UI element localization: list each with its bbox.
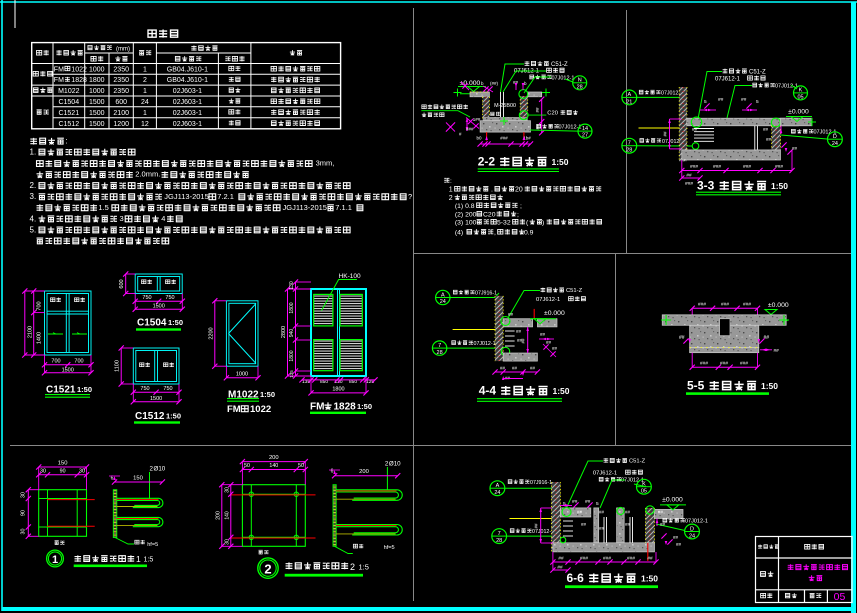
- svg-text:750: 750: [165, 295, 174, 301]
- svg-text:2: 2: [143, 77, 147, 84]
- svg-text:1:50: 1:50: [260, 390, 275, 399]
- svg-text:150: 150: [133, 475, 143, 481]
- svg-text:.: .: [491, 187, 493, 194]
- svg-text:750: 750: [163, 386, 172, 392]
- svg-text:##: ##: [546, 340, 552, 345]
- svg-text:###: ###: [685, 181, 693, 187]
- svg-text:##: ##: [647, 556, 653, 562]
- svg-text:2.0mm.: 2.0mm.: [135, 170, 160, 179]
- svg-text:###: ###: [740, 361, 748, 367]
- svg-text:1800: 1800: [332, 387, 344, 393]
- svg-text:24: 24: [689, 533, 695, 539]
- svg-text:1: 1: [52, 554, 58, 566]
- svg-text:HK-100: HK-100: [339, 273, 361, 280]
- svg-text:07J612-1: 07J612-1: [715, 77, 741, 83]
- svg-text:600: 600: [115, 99, 127, 106]
- svg-text:##: ##: [625, 510, 631, 515]
- svg-text:C1504: C1504: [137, 318, 167, 329]
- svg-text:30: 30: [224, 539, 230, 545]
- svg-text:hf=5: hf=5: [147, 542, 158, 548]
- svg-text:24: 24: [494, 490, 500, 496]
- svg-text:2350: 2350: [113, 77, 129, 84]
- svg-text:20: 20: [515, 187, 523, 194]
- svg-text:02J603-1: 02J603-1: [173, 110, 202, 117]
- svg-text:07J916-1: 07J916-1: [475, 291, 497, 297]
- svg-text:###: ###: [721, 302, 729, 308]
- svg-text:###: ###: [743, 164, 751, 170]
- svg-text:4.: 4.: [30, 214, 37, 223]
- svg-text:###: ###: [698, 302, 706, 308]
- svg-text:##: ##: [660, 522, 666, 527]
- svg-text:1:50: 1:50: [168, 318, 183, 327]
- svg-text:##: ##: [581, 522, 587, 527]
- svg-text:1000: 1000: [236, 371, 248, 377]
- svg-text:4-4: 4-4: [479, 384, 497, 398]
- svg-text:(3) 100: (3) 100: [455, 219, 477, 226]
- svg-text:;: ;: [520, 203, 522, 210]
- svg-text:K: K: [642, 482, 646, 488]
- svg-text:###: ###: [713, 164, 721, 170]
- svg-text:21: 21: [626, 99, 632, 105]
- svg-text:700: 700: [74, 359, 83, 365]
- svg-text:1000: 1000: [89, 66, 105, 73]
- svg-text:C1521: C1521: [46, 385, 76, 396]
- svg-text:02J603-1: 02J603-1: [173, 121, 202, 128]
- svg-text:1200: 1200: [113, 121, 129, 128]
- svg-text:##: ##: [741, 97, 747, 103]
- svg-text:2800: 2800: [281, 326, 287, 338]
- svg-text:50: 50: [244, 463, 250, 469]
- svg-text:7: 7: [498, 531, 501, 537]
- svg-text:##: ##: [663, 131, 668, 137]
- svg-text:30: 30: [40, 468, 46, 474]
- svg-text:C20: C20: [483, 211, 496, 218]
- svg-text::: :: [65, 137, 67, 146]
- svg-text:0.9: 0.9: [524, 229, 534, 236]
- svg-text:30: 30: [79, 468, 85, 474]
- svg-text:1: 1: [143, 88, 147, 95]
- svg-text:1100: 1100: [115, 360, 121, 372]
- svg-text:,: ,: [494, 229, 496, 236]
- svg-text:##: ##: [625, 522, 631, 527]
- svg-text:150: 150: [58, 460, 68, 466]
- svg-text:28: 28: [626, 148, 632, 154]
- svg-text:28: 28: [496, 538, 502, 544]
- svg-text:1500: 1500: [89, 121, 105, 128]
- svg-text:1400: 1400: [37, 332, 43, 344]
- svg-text:1:5: 1:5: [359, 563, 369, 572]
- svg-text:24: 24: [141, 99, 149, 106]
- svg-text:3mm,: 3mm,: [316, 159, 335, 168]
- svg-text:##: ##: [764, 335, 770, 341]
- svg-text:50: 50: [298, 463, 304, 469]
- svg-text:##: ##: [676, 542, 682, 547]
- svg-text:90: 90: [60, 468, 66, 474]
- svg-text:90: 90: [21, 510, 27, 516]
- svg-text:##: ##: [718, 97, 724, 103]
- svg-text:hf=5: hf=5: [384, 545, 395, 551]
- svg-text:05: 05: [641, 489, 647, 495]
- svg-text:1828: 1828: [334, 402, 357, 413]
- svg-text:6-6: 6-6: [567, 571, 585, 585]
- svg-text:5.: 5.: [30, 225, 37, 234]
- svg-text:): ): [542, 219, 544, 226]
- svg-text:FM: FM: [54, 77, 64, 84]
- svg-text:5: 5: [596, 501, 599, 507]
- svg-text:C1521: C1521: [58, 110, 79, 117]
- svg-text:(mm): (mm): [116, 46, 130, 52]
- svg-text:###: ###: [580, 556, 588, 562]
- svg-text:Ø10: Ø10: [389, 461, 401, 468]
- svg-text:N: N: [578, 78, 582, 84]
- svg-text:##: ##: [558, 556, 564, 562]
- svg-text:07J012-1: 07J012-1: [685, 519, 708, 525]
- svg-text:1500: 1500: [153, 304, 165, 310]
- svg-text:(2) 200: (2) 200: [455, 211, 477, 218]
- svg-text:5-32: 5-32: [497, 219, 511, 226]
- svg-text:###: ###: [743, 302, 751, 308]
- svg-text:1:50: 1:50: [357, 402, 372, 411]
- svg-text:±0.000: ±0.000: [544, 310, 565, 317]
- svg-text:###: ###: [627, 556, 635, 562]
- svg-text:D: D: [690, 526, 694, 532]
- svg-text:2: 2: [264, 562, 271, 577]
- svg-text:JGJ113-2015: JGJ113-2015: [164, 192, 208, 201]
- svg-text:1800: 1800: [289, 302, 295, 313]
- svg-text:2.: 2.: [30, 181, 37, 190]
- svg-text:##: ##: [692, 127, 698, 132]
- svg-text:##: ##: [540, 332, 546, 337]
- svg-text:7.1.1: 7.1.1: [335, 203, 352, 212]
- svg-text:7: 7: [628, 141, 631, 147]
- svg-text:Ø10: Ø10: [154, 466, 166, 473]
- svg-text:±0.000: ±0.000: [662, 497, 683, 504]
- svg-text:##: ##: [508, 312, 514, 317]
- svg-text:1500: 1500: [89, 99, 105, 106]
- svg-text:A: A: [496, 483, 500, 489]
- svg-text:07J612-1: 07J612-1: [514, 69, 540, 75]
- svg-text:1.5: 1.5: [98, 203, 108, 212]
- svg-text:07J012-1: 07J012-1: [532, 529, 554, 535]
- svg-text:###: ###: [775, 164, 783, 170]
- svg-text:##: ##: [763, 127, 769, 132]
- svg-text:M1022: M1022: [58, 88, 80, 95]
- svg-text:1000: 1000: [89, 88, 105, 95]
- svg-text:1: 1: [143, 66, 147, 73]
- svg-text:07J916-1: 07J916-1: [530, 480, 552, 486]
- svg-text:##: ##: [599, 526, 605, 531]
- svg-text:±0.000: ±0.000: [768, 302, 789, 309]
- svg-text:###: ###: [720, 361, 728, 367]
- svg-text::: :: [501, 195, 503, 202]
- svg-text:A: A: [441, 292, 445, 298]
- svg-text:D: D: [833, 134, 837, 140]
- svg-text:2100: 2100: [113, 110, 129, 117]
- svg-text:C20: C20: [547, 111, 558, 117]
- svg-text:1:5: 1:5: [144, 557, 154, 564]
- svg-text:24: 24: [832, 141, 838, 147]
- svg-text:C1512: C1512: [58, 121, 79, 128]
- svg-text:05: 05: [834, 591, 846, 603]
- svg-text:7: 7: [438, 343, 441, 349]
- svg-text:600: 600: [119, 279, 125, 288]
- svg-text:14: 14: [582, 126, 588, 132]
- svg-text:5: 5: [704, 99, 707, 105]
- svg-text:4: 4: [161, 214, 165, 223]
- svg-text:C51-Z: C51-Z: [551, 62, 568, 68]
- svg-text:##: ##: [552, 346, 558, 351]
- svg-text:C51-Z: C51-Z: [749, 70, 766, 76]
- svg-text:135: 135: [289, 370, 294, 378]
- svg-text:##: ##: [766, 137, 772, 142]
- svg-text:(4): (4): [455, 229, 463, 236]
- svg-text:5-5: 5-5: [687, 379, 705, 393]
- svg-text:;: ;: [517, 211, 519, 218]
- svg-text:07J012-1: 07J012-1: [552, 75, 575, 81]
- svg-text:12: 12: [141, 121, 149, 128]
- svg-text:##: ##: [599, 510, 605, 515]
- svg-text:2350: 2350: [113, 66, 129, 73]
- svg-text:700: 700: [51, 359, 60, 365]
- svg-text:1.: 1.: [30, 148, 37, 157]
- svg-text:30: 30: [21, 492, 27, 498]
- svg-text:1:50: 1:50: [166, 412, 181, 421]
- svg-text:K: K: [799, 88, 803, 94]
- svg-text:?: ?: [408, 192, 412, 201]
- svg-text:FM: FM: [54, 66, 64, 73]
- svg-text:C51-Z: C51-Z: [629, 459, 646, 465]
- svg-text:FM: FM: [310, 402, 324, 413]
- svg-text:A: A: [627, 92, 631, 98]
- svg-text:07J012-1: 07J012-1: [474, 341, 496, 347]
- svg-text:##: ##: [679, 335, 685, 341]
- svg-text:M-25B00: M-25B00: [494, 103, 516, 109]
- svg-text:7.2.1: 7.2.1: [217, 192, 234, 201]
- svg-text:700: 700: [37, 301, 43, 310]
- svg-text:07J612-1: 07J612-1: [536, 297, 560, 303]
- svg-text:JGJ113-2015: JGJ113-2015: [283, 203, 327, 212]
- svg-text:5: 5: [756, 99, 759, 105]
- svg-text:3: 3: [120, 214, 124, 223]
- svg-text:05: 05: [797, 94, 803, 100]
- svg-text:FM: FM: [227, 404, 241, 415]
- svg-text::: :: [450, 178, 452, 185]
- svg-text:6: 6: [331, 469, 334, 475]
- svg-text:##: ##: [534, 523, 539, 529]
- svg-text:b0: b0: [476, 136, 482, 141]
- svg-text:(1) 0.8: (1) 0.8: [455, 203, 475, 210]
- svg-text:C1512: C1512: [135, 411, 165, 422]
- svg-text:3.: 3.: [30, 192, 37, 201]
- svg-text:28: 28: [577, 84, 583, 90]
- svg-text:1500: 1500: [89, 110, 105, 117]
- svg-text:##: ##: [774, 348, 780, 354]
- svg-text:GB04.J610-1: GB04.J610-1: [167, 77, 208, 84]
- svg-text:GB04.J610-1: GB04.J610-1: [167, 66, 208, 73]
- svg-text:±0.000: ±0.000: [788, 109, 809, 116]
- svg-text:##: ##: [577, 510, 583, 515]
- svg-text:##: ##: [792, 146, 798, 151]
- svg-text:1500: 1500: [150, 396, 162, 402]
- svg-text:2350: 2350: [113, 88, 129, 95]
- svg-text:##: ##: [516, 329, 522, 334]
- svg-text:1:50: 1:50: [553, 386, 570, 396]
- svg-text:2: 2: [449, 195, 453, 202]
- svg-text:##: ##: [530, 366, 536, 371]
- svg-text:1: 1: [143, 110, 147, 117]
- svg-text:750: 750: [142, 295, 151, 301]
- svg-text:2100: 2100: [28, 326, 34, 338]
- svg-text:##: ##: [673, 535, 679, 540]
- svg-text:###: ###: [500, 136, 508, 141]
- svg-text:02J603-1: 02J603-1: [173, 99, 202, 106]
- svg-text:200: 200: [215, 511, 221, 520]
- svg-text:##: ##: [535, 107, 540, 113]
- svg-text:1800: 1800: [289, 350, 295, 361]
- svg-text:C51-Z: C51-Z: [566, 288, 583, 294]
- svg-text:940: 940: [289, 329, 295, 338]
- svg-text:###: ###: [700, 361, 708, 367]
- svg-text:02J603-1: 02J603-1: [173, 88, 202, 95]
- svg-text:###: ###: [690, 164, 698, 170]
- svg-text:##: ##: [512, 366, 518, 371]
- svg-text:1##: 1##: [473, 117, 481, 122]
- svg-text:##: ##: [585, 499, 591, 505]
- svg-text:###: ###: [466, 127, 474, 132]
- svg-text:C1504: C1504: [58, 99, 79, 106]
- svg-text:1828: 1828: [71, 77, 87, 84]
- svg-text:1:50: 1:50: [77, 385, 92, 394]
- svg-text:1022: 1022: [71, 66, 87, 73]
- svg-text:3-3: 3-3: [697, 179, 715, 193]
- svg-text:1022: 1022: [250, 404, 271, 415]
- svg-text:24: 24: [440, 299, 446, 305]
- svg-text:1:50: 1:50: [552, 157, 569, 167]
- svg-text:2: 2: [350, 562, 355, 572]
- svg-text:###: ###: [603, 556, 611, 562]
- svg-text:2-2: 2-2: [478, 155, 496, 169]
- svg-text:##: ##: [517, 338, 523, 343]
- svg-text:30: 30: [224, 487, 230, 493]
- svg-text:750: 750: [140, 386, 149, 392]
- svg-text:2200: 2200: [208, 327, 214, 339]
- svg-text:##: ##: [658, 510, 664, 515]
- svg-text:200: 200: [359, 469, 369, 475]
- svg-text:1:50: 1:50: [641, 574, 658, 584]
- svg-text:130: 130: [289, 281, 295, 290]
- svg-text:140: 140: [269, 463, 278, 469]
- svg-text:1:50: 1:50: [761, 381, 778, 391]
- svg-text:140: 140: [224, 511, 230, 520]
- svg-text:200: 200: [269, 455, 279, 461]
- svg-text:28: 28: [437, 350, 443, 356]
- svg-text:1: 1: [136, 554, 141, 564]
- svg-text:27: 27: [582, 133, 588, 139]
- svg-text:07J612-1: 07J612-1: [593, 471, 617, 477]
- svg-text:1: 1: [449, 187, 453, 194]
- svg-text:1800: 1800: [89, 77, 105, 84]
- svg-text:1:50: 1:50: [771, 181, 788, 191]
- svg-text:(##): (##): [490, 81, 499, 86]
- svg-text:##: ##: [505, 376, 511, 381]
